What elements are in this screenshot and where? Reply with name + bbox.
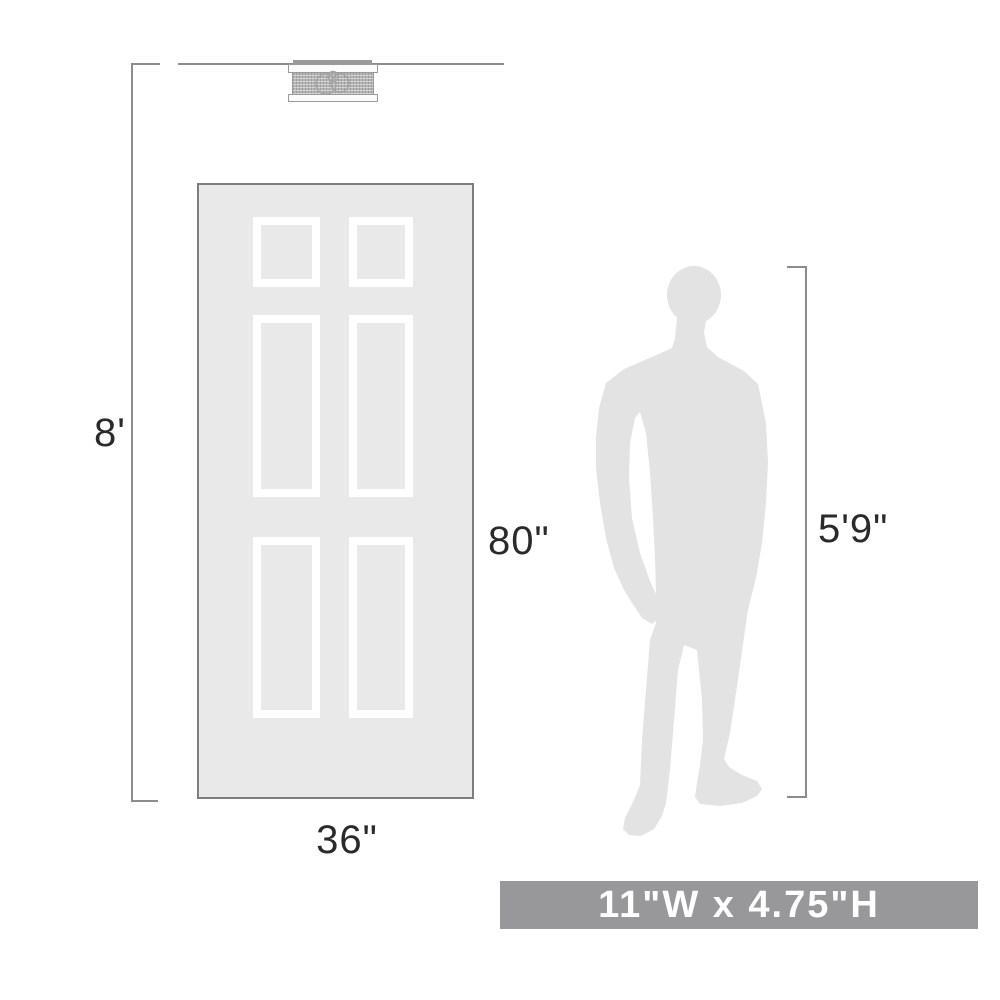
door-panel-top-right (349, 217, 413, 287)
person-height-label: 5'9" (818, 509, 888, 549)
person-height-dimension-line (805, 266, 807, 798)
person-height-top-tick (787, 266, 807, 268)
door-height-label: 80" (488, 521, 550, 561)
fixture-size-banner: 11"W x 4.75"H (500, 881, 978, 929)
person-head (667, 266, 721, 324)
ceiling-height-bottom-tick (131, 800, 158, 802)
door-panel-top-left (253, 217, 320, 287)
fixture-size-label: 11"W x 4.75"H (598, 886, 880, 924)
ceiling-height-dimension-line (131, 63, 133, 802)
door-panel-bottom-left (253, 537, 320, 718)
dimension-diagram: 8' 80" 36" 5'9" (0, 0, 1000, 1000)
door-panel-middle-right (349, 315, 413, 497)
person-silhouette (594, 263, 774, 838)
flush-mount-fixture (288, 60, 378, 101)
door-panel-bottom-right (349, 537, 413, 718)
door-width-label: 36" (297, 820, 397, 860)
ceiling-height-top-tick (131, 63, 160, 65)
fixture-bottom-rim (288, 94, 378, 102)
person-height-bottom-tick (787, 796, 807, 798)
ceiling-height-label: 8' (94, 413, 126, 453)
door-panel-middle-left (253, 315, 320, 497)
person-body (596, 318, 768, 836)
door (197, 183, 474, 799)
